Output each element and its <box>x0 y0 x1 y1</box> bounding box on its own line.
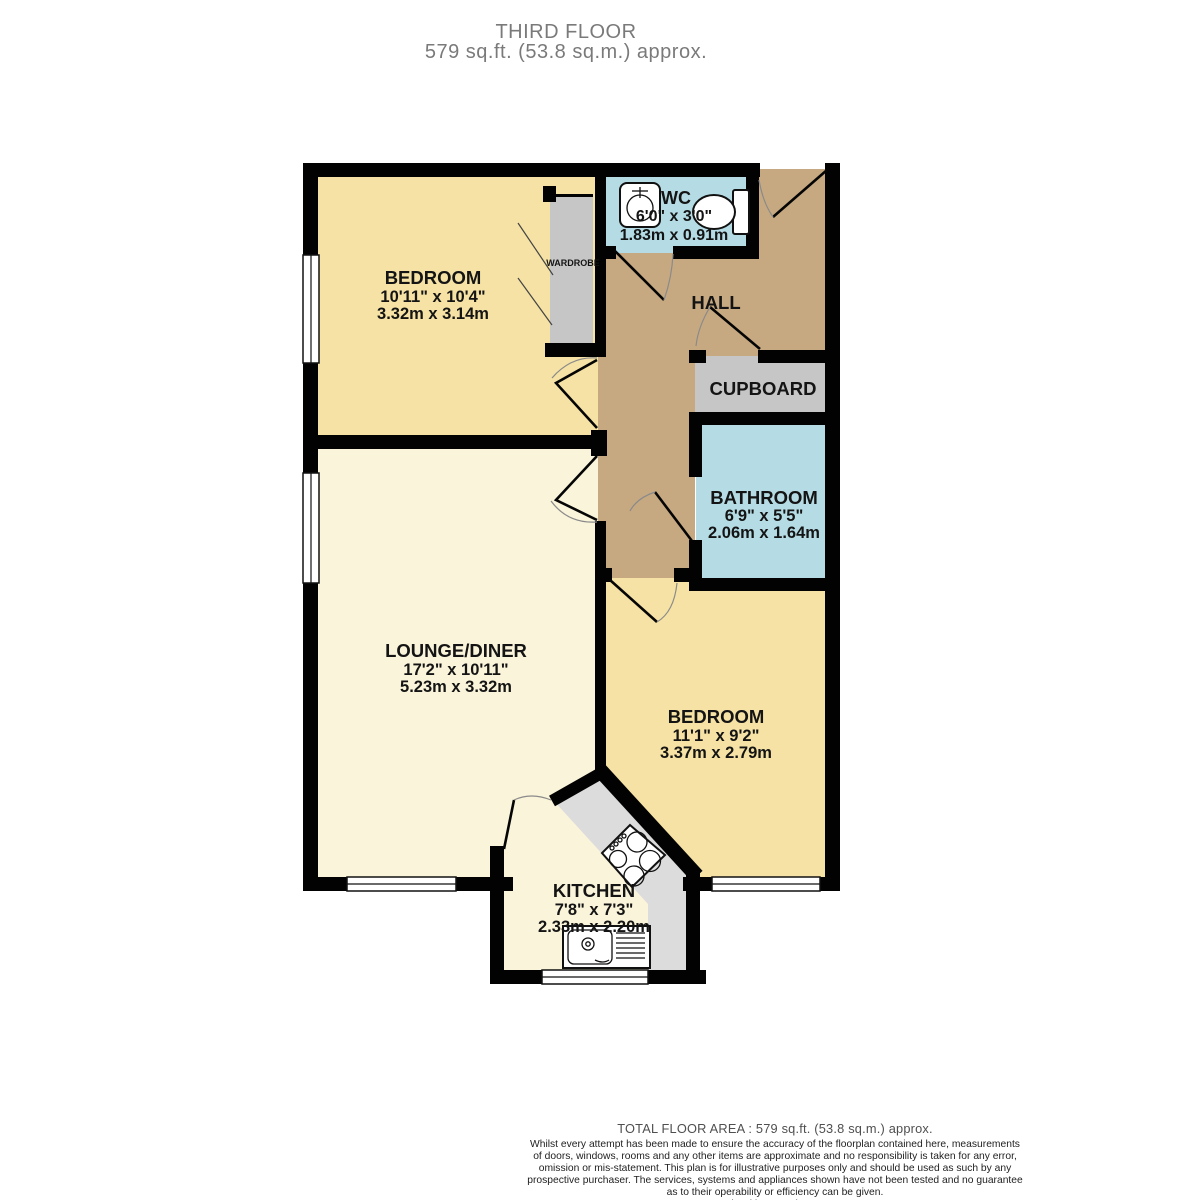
window <box>712 877 820 891</box>
disclaimer-line: omission or mis-statement. This plan is … <box>475 1163 1075 1175</box>
floorplan-page: THIRD FLOOR 579 sq.ft. (53.8 sq.m.) appr… <box>0 0 1200 1200</box>
bedroom-1-metric: 3.32m x 3.14m <box>377 305 489 323</box>
wardrobe-label: WARDROBE <box>546 258 600 268</box>
kitchen-label: KITCHEN <box>553 880 635 901</box>
window <box>303 255 319 363</box>
lounge-metric: 5.23m x 3.32m <box>400 678 512 696</box>
kitchen-imperial: 7'8" x 7'3" <box>555 901 634 919</box>
bedroom-2-label: BEDROOM <box>668 706 765 727</box>
window <box>347 877 456 891</box>
bathroom-metric: 2.06m x 1.64m <box>708 524 820 542</box>
window <box>542 970 648 984</box>
wc-metric: 1.83m x 0.91m <box>620 227 729 244</box>
bathroom-label: BATHROOM <box>710 487 818 508</box>
disclaimer-line: Whilst every attempt has been made to en… <box>475 1139 1075 1151</box>
disclaimer-line: of doors, windows, rooms and any other i… <box>475 1151 1075 1163</box>
total-floor-area: TOTAL FLOOR AREA : 579 sq.ft. (53.8 sq.m… <box>475 1121 1075 1136</box>
plan-footer: TOTAL FLOOR AREA : 579 sq.ft. (53.8 sq.m… <box>475 1121 1075 1200</box>
disclaimer-line: prospective purchaser. The services, sys… <box>475 1175 1075 1187</box>
disclaimer: Whilst every attempt has been made to en… <box>475 1139 1075 1200</box>
lounge-imperial: 17'2" x 10'11" <box>403 661 508 679</box>
wc-label: WC <box>661 188 691 208</box>
bathroom-imperial: 6'9" x 5'5" <box>725 507 804 525</box>
cupboard-label: CUPBOARD <box>710 378 817 399</box>
window <box>303 473 319 583</box>
bedroom-1-imperial: 10'11" x 10'4" <box>380 288 485 306</box>
bedroom-2-metric: 3.37m x 2.79m <box>660 744 772 762</box>
floorplan-drawing: BEDROOM 10'11" x 10'4" 3.32m x 3.14m WC … <box>0 0 1200 1200</box>
wardrobe-area <box>550 196 593 344</box>
hall-label: HALL <box>691 292 740 313</box>
wc-imperial: 6'0" x 3'0" <box>636 208 712 225</box>
kitchen-metric: 2.33m x 2.20m <box>538 918 650 936</box>
bedroom-1-label: BEDROOM <box>385 267 482 288</box>
disclaimer-line: as to their operability or efficiency ca… <box>475 1187 1075 1199</box>
bedroom-2-imperial: 11'1" x 9'2" <box>673 727 760 745</box>
lounge-label: LOUNGE/DINER <box>385 640 527 661</box>
